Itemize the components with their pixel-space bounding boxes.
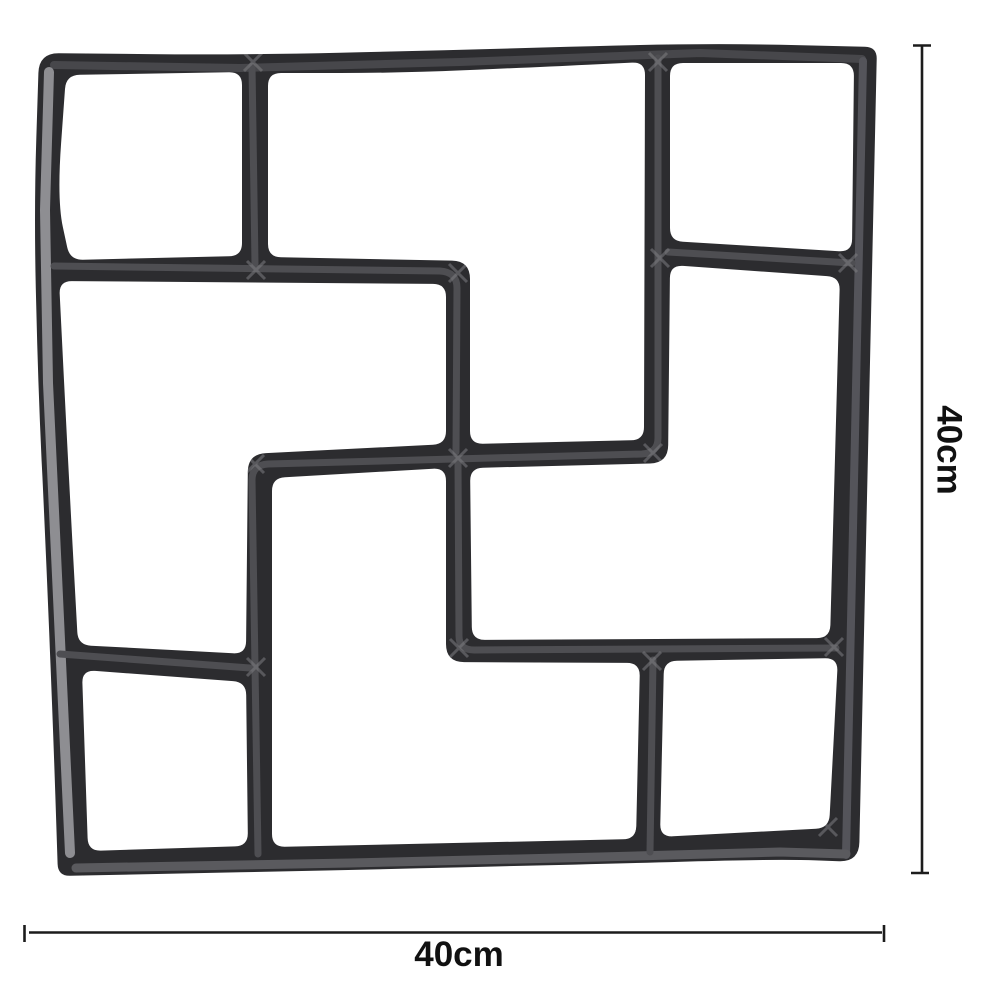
svg-text:40cm: 40cm [414, 935, 504, 974]
svg-text:40cm: 40cm [930, 405, 969, 495]
